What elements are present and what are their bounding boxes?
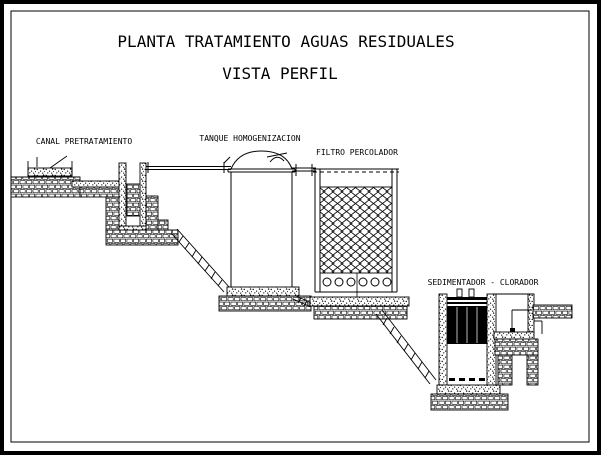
effluent-outlet-slab (533, 305, 572, 318)
filter-foundation-bricks (314, 306, 407, 319)
label-canal-pretratamiento: CANAL PRETRATAMIENTO (36, 137, 133, 146)
sedimentador-foundation-pad (437, 385, 500, 394)
influent-pipe (146, 157, 231, 173)
underdrain-hole (371, 278, 379, 286)
page-subtitle: VISTA PERFIL (222, 64, 338, 83)
filter-media-bed (320, 187, 392, 273)
underdrain-hole (347, 278, 355, 286)
underdrain-hole (323, 278, 331, 286)
excavation-slope-1 (171, 229, 230, 292)
sedimentador-foundation-bricks (431, 394, 508, 410)
sluice-gate-handle (50, 156, 67, 168)
tank-to-filter-pipe (292, 164, 316, 176)
label-filtro-percolador: FILTRO PERCOLADOR (316, 148, 398, 157)
tank-foundation-pad (227, 287, 299, 296)
tank-foundation-bricks (219, 296, 311, 311)
underdrain-hole (335, 278, 343, 286)
sedimentador-vent-stub (469, 289, 474, 297)
canal-pretratamiento-section (11, 156, 121, 232)
tank-vent-dome (270, 157, 284, 162)
cad-drawing-sheet: PLANTA TRATAMIENTO AGUAS RESIDUALES VIST… (0, 0, 601, 455)
clorador-chamber (494, 294, 572, 385)
underdrain-hole (383, 278, 391, 286)
excavation-slope-2 (376, 310, 436, 384)
clorador-foundation-bricks (495, 339, 538, 355)
profile-drawing: PLANTA TRATAMIENTO AGUAS RESIDUALES VIST… (0, 0, 601, 455)
sedimentador-top-beam (447, 297, 487, 300)
sedimentador-vent-stub (457, 289, 462, 297)
label-sedimentador-clorador: SEDIMENTADOR - CLORADOR (428, 278, 539, 287)
label-tanque-homogenizacion: TANQUE HOMOGENIZACION (199, 134, 300, 143)
clorador-floor-pad (494, 332, 534, 339)
filter-foundation-pad (310, 297, 409, 306)
tanque-homogenizacion-tank (219, 151, 311, 311)
filtro-percolador-filter (310, 169, 409, 319)
page-title: PLANTA TRATAMIENTO AGUAS RESIDUALES (117, 32, 454, 51)
underdrain-hole (359, 278, 367, 286)
